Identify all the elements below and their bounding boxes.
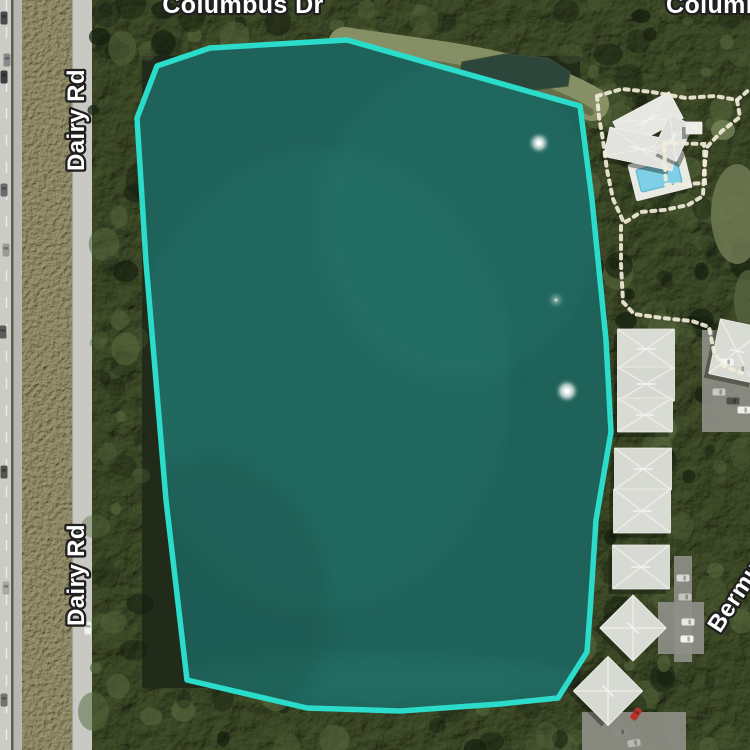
tree-blob	[701, 68, 712, 78]
building-roof	[611, 448, 672, 495]
tree-blob	[624, 661, 635, 671]
car	[713, 389, 726, 396]
tree-blob	[111, 332, 139, 365]
car	[1, 12, 8, 25]
tree-blob	[631, 9, 650, 23]
road-label-dairy-lower: Dairy Rd	[63, 524, 90, 626]
satellite-map[interactable]: Columbus DrColumbus DrDairy RdDairy RdBe…	[0, 0, 750, 750]
building-roof	[609, 545, 670, 594]
tree-blob	[657, 655, 671, 672]
tree-blob	[594, 43, 623, 65]
tree-blob	[108, 31, 136, 65]
highway-road	[0, 0, 11, 750]
car	[727, 398, 740, 405]
tree-blob	[120, 640, 148, 661]
frontage-road	[14, 0, 23, 750]
tree-blob	[92, 558, 116, 588]
tree-blob	[133, 469, 150, 484]
tree-blob	[100, 612, 127, 633]
tree-blob	[588, 65, 600, 79]
tree-blob	[104, 378, 126, 396]
road-label-columbus-top: Columbus Dr	[162, 0, 323, 19]
tree-blob	[694, 262, 708, 280]
car	[3, 582, 10, 595]
lake-fountain-core	[564, 388, 570, 394]
tree-blob	[536, 722, 558, 748]
building-roof	[610, 489, 671, 538]
tree-blob	[93, 332, 108, 345]
tree-blob	[110, 310, 128, 330]
car	[682, 619, 695, 626]
tree-blob	[358, 0, 376, 20]
tree-blob	[704, 676, 715, 689]
lake-fountain-core	[554, 298, 558, 302]
tree-blob	[713, 460, 726, 474]
tree-blob	[96, 253, 107, 261]
car	[3, 244, 10, 257]
tree-blob	[640, 301, 667, 329]
car	[677, 575, 690, 582]
tree-blob	[429, 717, 446, 733]
tree-blob	[90, 662, 101, 674]
tree-blob	[670, 512, 694, 539]
car	[4, 54, 11, 67]
tree-blob	[553, 0, 580, 23]
road-label-dairy-upper: Dairy Rd	[63, 69, 90, 171]
tree-blob	[720, 35, 733, 50]
tree-blob	[409, 5, 438, 36]
tree-blob	[627, 29, 650, 54]
water-shading	[320, 60, 600, 380]
tree-blob	[110, 503, 121, 515]
tree-blob	[110, 206, 127, 228]
building-roof	[614, 398, 673, 437]
tree-blob	[664, 58, 676, 70]
tree-blob	[707, 563, 724, 579]
tree-blob	[134, 432, 146, 445]
tree-blob	[107, 673, 130, 699]
lake-fountain-core	[537, 141, 542, 146]
tree-blob	[140, 708, 162, 726]
tree-blob	[715, 725, 738, 750]
car	[1, 71, 8, 84]
car	[0, 326, 7, 339]
tree-blob	[116, 411, 126, 422]
car	[681, 636, 694, 643]
road-label-columbus-top-right: Columbus Dr	[666, 0, 750, 19]
car	[1, 466, 8, 479]
tree-blob	[615, 312, 637, 330]
tree-blob	[609, 258, 620, 270]
tree-blob	[78, 692, 109, 731]
tree-blob	[98, 442, 117, 464]
tree-blob	[217, 731, 229, 746]
tree-blob	[682, 470, 695, 484]
tree-blob	[151, 30, 176, 56]
tree-blob	[176, 691, 191, 709]
tree-blob	[127, 594, 154, 615]
car	[679, 594, 692, 601]
car	[1, 694, 8, 707]
tree-blob	[557, 44, 583, 64]
car	[738, 407, 750, 414]
tree-blob	[704, 444, 714, 457]
map-viewport[interactable]: Columbus DrColumbus DrDairy RdDairy RdBe…	[0, 0, 750, 750]
tree-blob	[656, 271, 672, 284]
car	[1, 184, 8, 197]
tree-blob	[99, 3, 113, 18]
